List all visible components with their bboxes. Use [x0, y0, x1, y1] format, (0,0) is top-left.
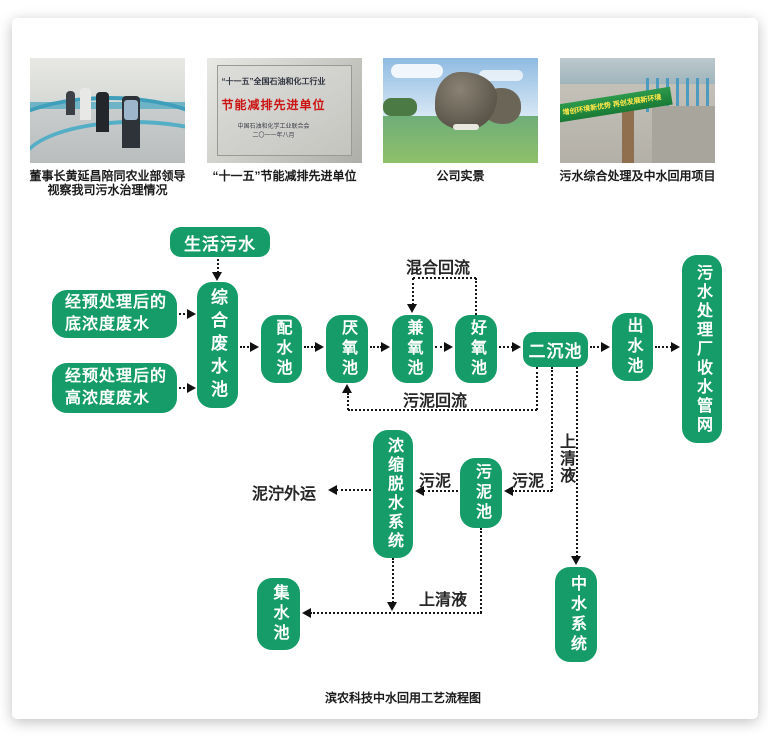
photo-company-scene [383, 58, 538, 163]
arrowhead-right [315, 342, 324, 352]
conn-supernatant-to-collecting [310, 612, 482, 614]
node-low-concentration-wastewater: 经预处理后的 底浓度废水 [52, 290, 177, 338]
node-aerobic-pool: 好氧池 [455, 315, 497, 383]
cloud [391, 64, 443, 78]
diagram-caption: 滨农科技中水回用工艺流程图 [303, 689, 503, 706]
node-anaerobic-pool: 厌氧池 [326, 315, 368, 383]
arrowhead-right [187, 383, 196, 393]
arrowhead-right [250, 342, 259, 352]
photo-caption-4: 污水综合处理及中水回用项目 [545, 169, 730, 183]
arrowhead-down [212, 272, 222, 281]
label-sludge: 污泥 [512, 467, 544, 491]
arrowhead-right [601, 342, 610, 352]
photo-pillar [622, 110, 634, 163]
node-facultative-pool: 兼氧池 [392, 315, 433, 383]
label-supernatant: 上清液 [419, 586, 467, 610]
photo-person [80, 88, 91, 120]
arrowhead-down [407, 304, 417, 313]
arrowhead-right [671, 342, 680, 352]
arrowhead-right [444, 342, 453, 352]
node-dewatering-system: 浓缩脱水系统 [373, 430, 413, 558]
conn-mixed-reflux-up [475, 278, 477, 315]
arrowhead-up [342, 384, 352, 393]
arrowhead-left [302, 608, 311, 618]
label-mixed-reflux: 混合回流 [406, 254, 470, 278]
caption-line: 视察我司污水治理情况 [15, 183, 200, 197]
conn-dewatering-down [392, 558, 394, 603]
photo-caption-2: “十一五”节能减排先进单位 [192, 169, 377, 183]
arrowhead-right [187, 309, 196, 319]
conn-sludge-reflux-down [536, 367, 538, 410]
node-collecting-pool: 集水池 [257, 578, 300, 650]
caption-line: 污水综合处理及中水回用项目 [545, 169, 730, 183]
caption-line: 董事长黄延昌陪同农业部领导 [15, 169, 200, 183]
photo-person-shirt [124, 100, 138, 120]
conn-domestic-to-comprehensive [217, 259, 219, 273]
photo-person [96, 92, 109, 132]
conn-aerobic-to-secondary [499, 346, 513, 348]
photo-trees [383, 98, 417, 116]
conn-effluent-to-network [655, 346, 672, 348]
caption-line: 公司实景 [368, 169, 553, 183]
arrowhead-down [571, 556, 581, 565]
label-sludge-reflux: 污泥回流 [403, 387, 467, 411]
arrowhead-right [381, 342, 390, 352]
conn-dewatering-to-mud-out [336, 489, 371, 491]
plaque-header: “十一五”全国石油和化工行业 [207, 76, 340, 87]
plaque-date: 二〇一一年八月 [207, 130, 340, 139]
photo-caption-3: 公司实景 [368, 169, 553, 183]
node-secondary-sedimentation-pool: 二沉池 [523, 332, 588, 367]
label-mud-transport: 泥泞外运 [252, 480, 316, 504]
node-reclaimed-water-system: 中水系统 [555, 567, 597, 662]
photo-wall [652, 106, 715, 163]
photo-reuse-project: 增创环境新优势 再创发展新环境 [560, 58, 715, 163]
node-collection-network: 污水处理厂收水管网 [682, 255, 722, 443]
node-effluent-pool: 出水池 [612, 313, 653, 381]
photo-inspection [30, 58, 185, 163]
caption-line: “十一五”节能减排先进单位 [192, 169, 377, 183]
arrowhead-down [387, 602, 397, 611]
photo-award-plaque: “十一五”全国石油和化工行业 节能减排先进单位 中国石油和化学工业联合会 二〇一… [207, 58, 362, 163]
arrowhead-right [512, 342, 521, 352]
plaque-issuer: 中国石油和化学工业联合会 [207, 121, 340, 130]
node-distribution-pool: 配水池 [261, 315, 302, 383]
conn-sludge-pool-down [480, 528, 482, 613]
conn-mixed-reflux-down [412, 278, 414, 305]
node-sludge-pool: 污泥池 [460, 458, 502, 528]
label-sludge: 污泥 [419, 467, 451, 491]
photo-caption-1: 董事长黄延昌陪同农业部领导 视察我司污水治理情况 [15, 169, 200, 197]
node-comprehensive-wastewater-pool: 综合废水池 [197, 282, 238, 408]
node-high-concentration-wastewater: 经预处理后的 高浓度废水 [52, 363, 177, 413]
photo-person [66, 91, 75, 115]
node-domestic-sewage: 生活污水 [170, 227, 270, 257]
arrowhead-left [328, 485, 337, 495]
label-supernatant-vertical: 上清液 [553, 433, 577, 484]
photo-boat [453, 124, 479, 130]
conn-sludge-reflux-up [347, 393, 349, 410]
plaque-title: 节能减排先进单位 [207, 96, 340, 113]
